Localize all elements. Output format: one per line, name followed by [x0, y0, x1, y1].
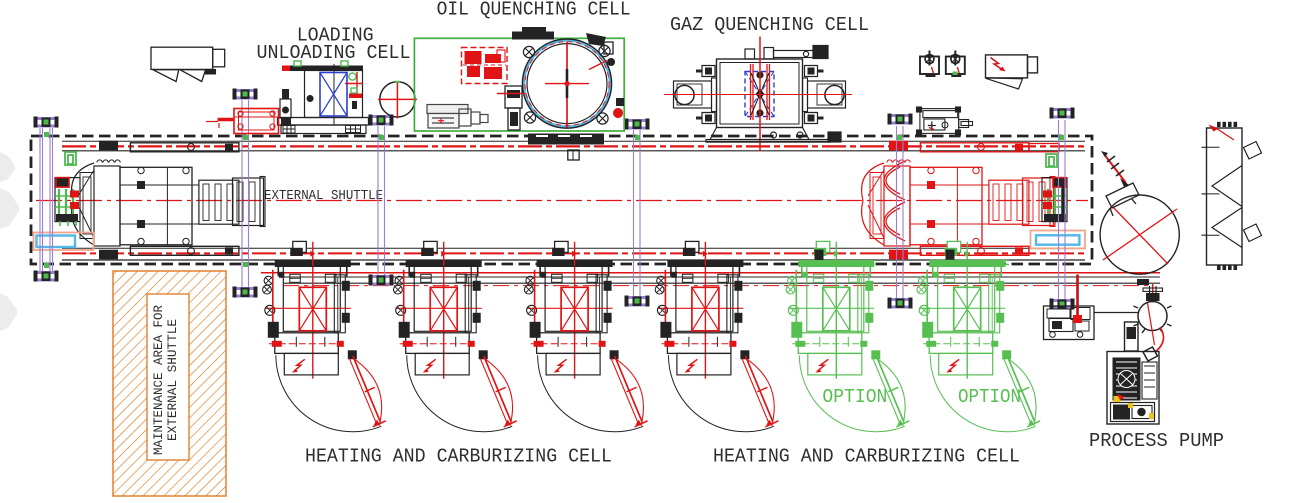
svg-text:GAZ QUENCHING CELL: GAZ QUENCHING CELL	[670, 14, 869, 36]
svg-text:UNLOADING CELL: UNLOADING CELL	[257, 42, 411, 64]
svg-text:HEATING AND CARBURIZING CELL: HEATING AND CARBURIZING CELL	[305, 446, 612, 468]
svg-text:OPTION: OPTION	[958, 386, 1021, 408]
svg-text:EXTERNAL SHUTTLE: EXTERNAL SHUTTLE	[264, 188, 383, 204]
svg-text:OPTION: OPTION	[822, 386, 887, 408]
svg-text:OIL QUENCHING CELL: OIL QUENCHING CELL	[437, 0, 631, 20]
svg-text:MAINTENANCE AREA FOR: MAINTENANCE AREA FOR	[151, 305, 166, 455]
svg-text:EXTERNAL SHUTTLE: EXTERNAL SHUTTLE	[165, 319, 180, 441]
svg-text:HEATING AND CARBURIZING CELL: HEATING AND CARBURIZING CELL	[713, 446, 1020, 468]
svg-text:PROCESS PUMP: PROCESS PUMP	[1089, 430, 1224, 452]
